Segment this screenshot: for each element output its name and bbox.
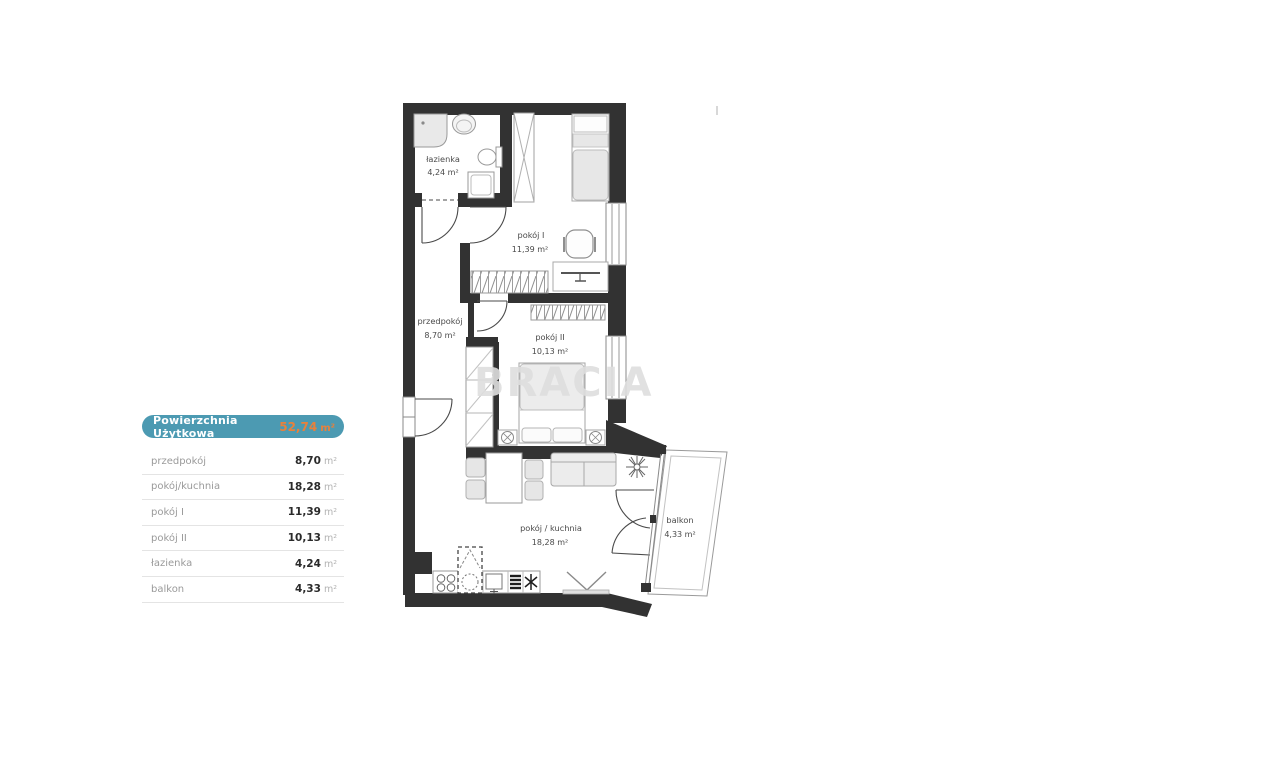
summary-header: Powierzchnia Użytkowa 52,74m² xyxy=(142,415,344,438)
tall-cabinet-dashed xyxy=(458,547,482,593)
room-labels: łazienka 4,24 m² pokój I 11,39 m² przedp… xyxy=(417,154,695,547)
room-name-pokoj2: pokój II xyxy=(535,332,564,342)
room-area-value: 10,13m² xyxy=(288,532,337,544)
room-area-pokoj2: 10,13 m² xyxy=(532,347,568,356)
wall-left-upper xyxy=(403,103,415,397)
summary-row: balkon 4,33m² xyxy=(142,577,344,603)
summary-row: pokój I 11,39m² xyxy=(142,500,344,526)
dining-chair xyxy=(525,460,543,479)
summary-header-label: Powierzchnia Użytkowa xyxy=(153,414,279,440)
room-name-przedpokoj: przedpokój xyxy=(417,316,462,326)
summary-total-value: 52,74m² xyxy=(279,420,335,434)
dining-table xyxy=(486,453,522,503)
room-area-przedpokoj: 8,70 m² xyxy=(424,331,455,340)
room-label: pokój II xyxy=(151,533,187,544)
dining-chair xyxy=(466,458,485,477)
dining-chair xyxy=(466,480,485,499)
room-area-lazienka: 4,24 m² xyxy=(427,168,458,177)
room-name-lazienka: łazienka xyxy=(426,154,460,164)
toilet-bowl xyxy=(478,149,496,165)
wall-right-1 xyxy=(608,115,626,205)
room-name-kuchnia: pokój / kuchnia xyxy=(520,523,582,533)
plant-icon xyxy=(626,456,648,478)
entrance-door-arc xyxy=(415,399,452,436)
room-area-value: 11,39m² xyxy=(288,506,337,518)
room1-door-arc xyxy=(470,207,506,243)
glass-wall-post xyxy=(641,583,651,592)
room-area-value: 4,24m² xyxy=(295,558,337,570)
window-room1 xyxy=(606,203,626,265)
room-area-balkon: 4,33 m² xyxy=(664,530,695,539)
room2-door-arc xyxy=(477,301,507,331)
room-label: łazienka xyxy=(151,558,192,569)
wall-bottom-slant xyxy=(602,593,652,617)
summary-row: pokój II 10,13m² xyxy=(142,526,344,552)
shower xyxy=(414,114,447,147)
wall-bathroom-bottom-a xyxy=(403,193,422,207)
room-area-value: 8,70m² xyxy=(295,455,337,467)
tv-stand xyxy=(563,590,609,594)
summary-row: łazienka 4,24m² xyxy=(142,551,344,577)
bed-band xyxy=(573,134,608,147)
bed-pillow xyxy=(522,428,551,442)
glass-wall-post xyxy=(650,515,656,523)
room-area-value: 18,28m² xyxy=(288,481,337,493)
watermark-text: BRACIA xyxy=(474,360,653,406)
balcony-door-arc xyxy=(616,490,650,528)
wall-step xyxy=(413,552,432,574)
bed-duvet xyxy=(573,150,608,200)
bed-pillow xyxy=(553,428,582,442)
wall-thin-hall xyxy=(468,303,474,340)
balcony-door-leaf xyxy=(612,553,650,555)
room-name-pokoj1: pokój I xyxy=(518,230,545,240)
washbasin xyxy=(453,114,476,134)
desk-chair xyxy=(566,230,593,258)
dining-chair xyxy=(525,481,543,500)
bathroom-door-arc xyxy=(422,207,458,243)
room-area-value: 4,33m² xyxy=(295,583,337,595)
balcony-door-arc xyxy=(612,518,646,553)
room-label: przedpokój xyxy=(151,456,206,467)
room-label: balkon xyxy=(151,584,184,595)
wall-room1-room2-b xyxy=(508,293,608,303)
summary-row: przedpokój 8,70m² xyxy=(142,449,344,475)
wall-right-2 xyxy=(608,263,626,338)
wall-bottom xyxy=(405,593,607,607)
floor-plan: łazienka 4,24 m² pokój I 11,39 m² przedp… xyxy=(390,90,750,625)
summary-row: pokój/kuchnia 18,28m² xyxy=(142,475,344,501)
area-summary-panel: Powierzchnia Użytkowa 52,74m² przedpokój… xyxy=(142,415,344,603)
room-area-kuchnia: 18,28 m² xyxy=(532,538,568,547)
summary-rows: przedpokój 8,70m² pokój/kuchnia 18,28m² … xyxy=(142,449,344,603)
wall-hall-room1 xyxy=(460,243,470,293)
room-area-pokoj1: 11,39 m² xyxy=(512,245,548,254)
tv-bracket xyxy=(567,572,606,590)
bed-pillow xyxy=(574,116,607,132)
shower-drain xyxy=(421,121,424,124)
glass-wall-post xyxy=(656,445,666,454)
watermark-fragment xyxy=(716,106,718,115)
room-label: pokój/kuchnia xyxy=(151,481,220,492)
room-label: pokój I xyxy=(151,507,184,518)
kitchen-sink xyxy=(486,574,502,589)
closet-hatch-room1 xyxy=(471,271,548,293)
page-canvas: Powierzchnia Użytkowa 52,74m² przedpokój… xyxy=(0,0,1280,765)
toilet-tank xyxy=(496,147,502,167)
closet-hatch-room2 xyxy=(531,305,605,320)
room-name-balkon: balkon xyxy=(666,515,693,525)
